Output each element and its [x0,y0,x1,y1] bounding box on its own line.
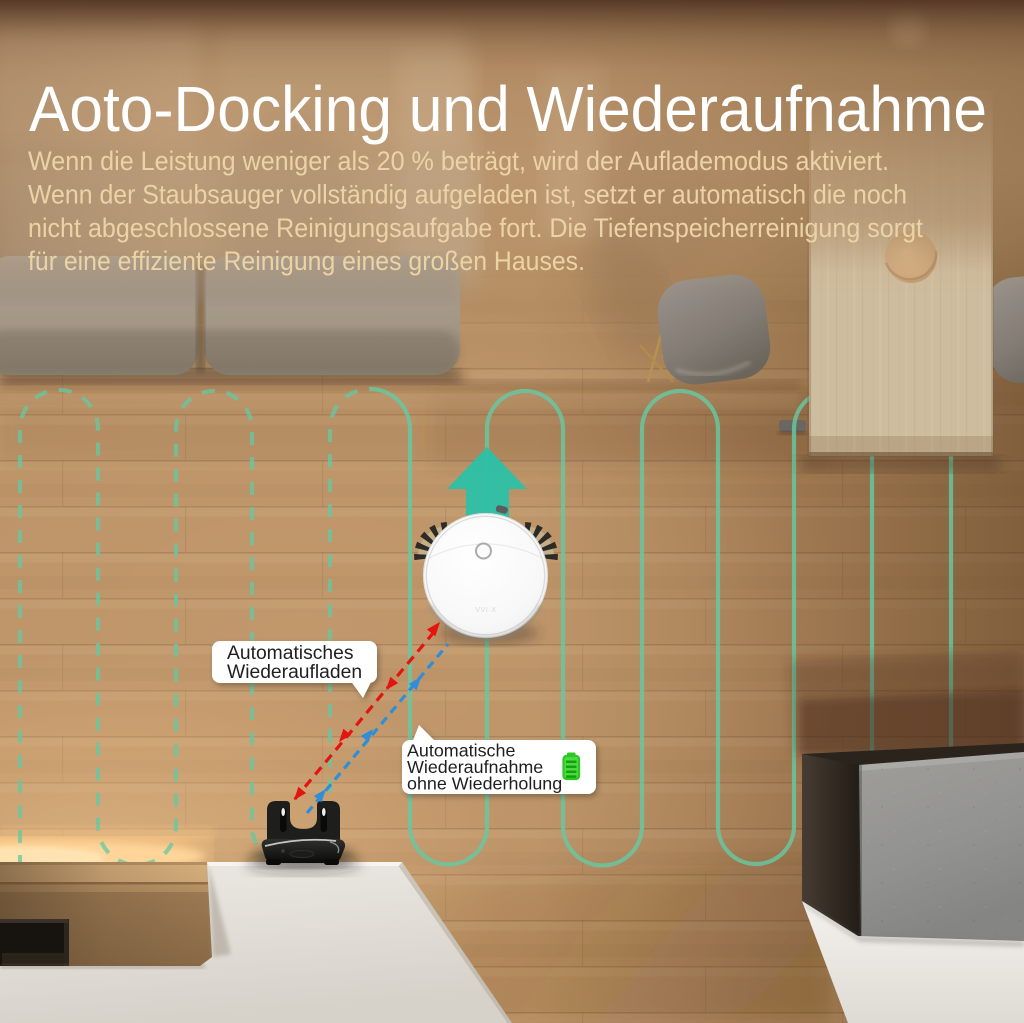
svg-text:Wenn die Leistung weniger als: Wenn die Leistung weniger als 20 % beträ… [28,146,889,176]
svg-text:Automatisches: Automatisches [227,643,353,664]
svg-text:Wenn der Staubsauger vollständ: Wenn der Staubsauger vollständig aufgela… [28,180,907,210]
svg-text:für eine effiziente Reinigung: für eine effiziente Reinigung eines groß… [28,246,585,276]
svg-text:VVI·X: VVI·X [475,607,496,614]
svg-text:Wiederaufladen: Wiederaufladen [227,662,362,683]
svg-text:nicht abgeschlossene Reinigung: nicht abgeschlossene Reinigungsaufgabe f… [28,213,924,243]
svg-text:ohne Wiederholung: ohne Wiederholung [407,774,562,794]
svg-text:Aoto-Docking und Wiederaufnahm: Aoto-Docking und Wiederaufnahme [29,73,987,145]
